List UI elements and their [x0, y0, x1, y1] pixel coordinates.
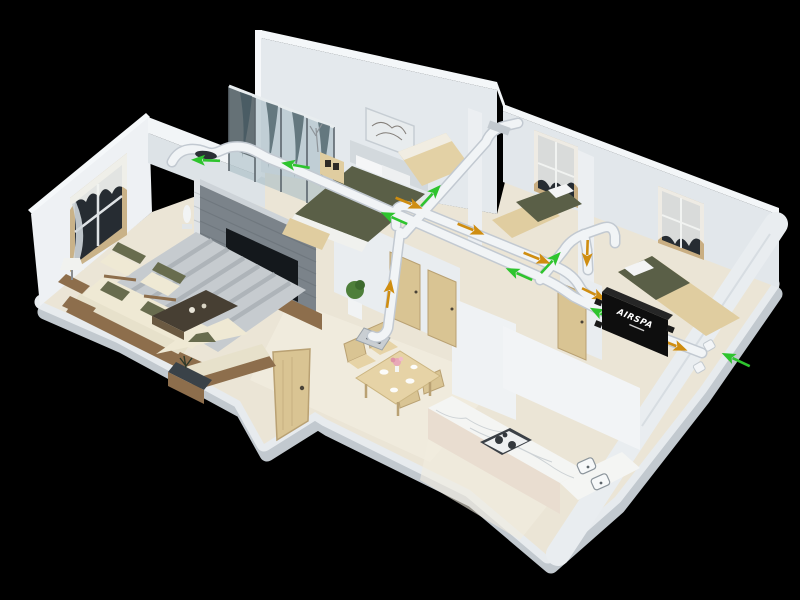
- plate: [406, 378, 415, 383]
- plate: [380, 369, 389, 374]
- plate: [410, 365, 417, 369]
- apartment-ventilation-render: AIRSPA: [0, 0, 800, 600]
- scene-canvas: AIRSPA: [0, 0, 800, 600]
- plate: [390, 388, 398, 393]
